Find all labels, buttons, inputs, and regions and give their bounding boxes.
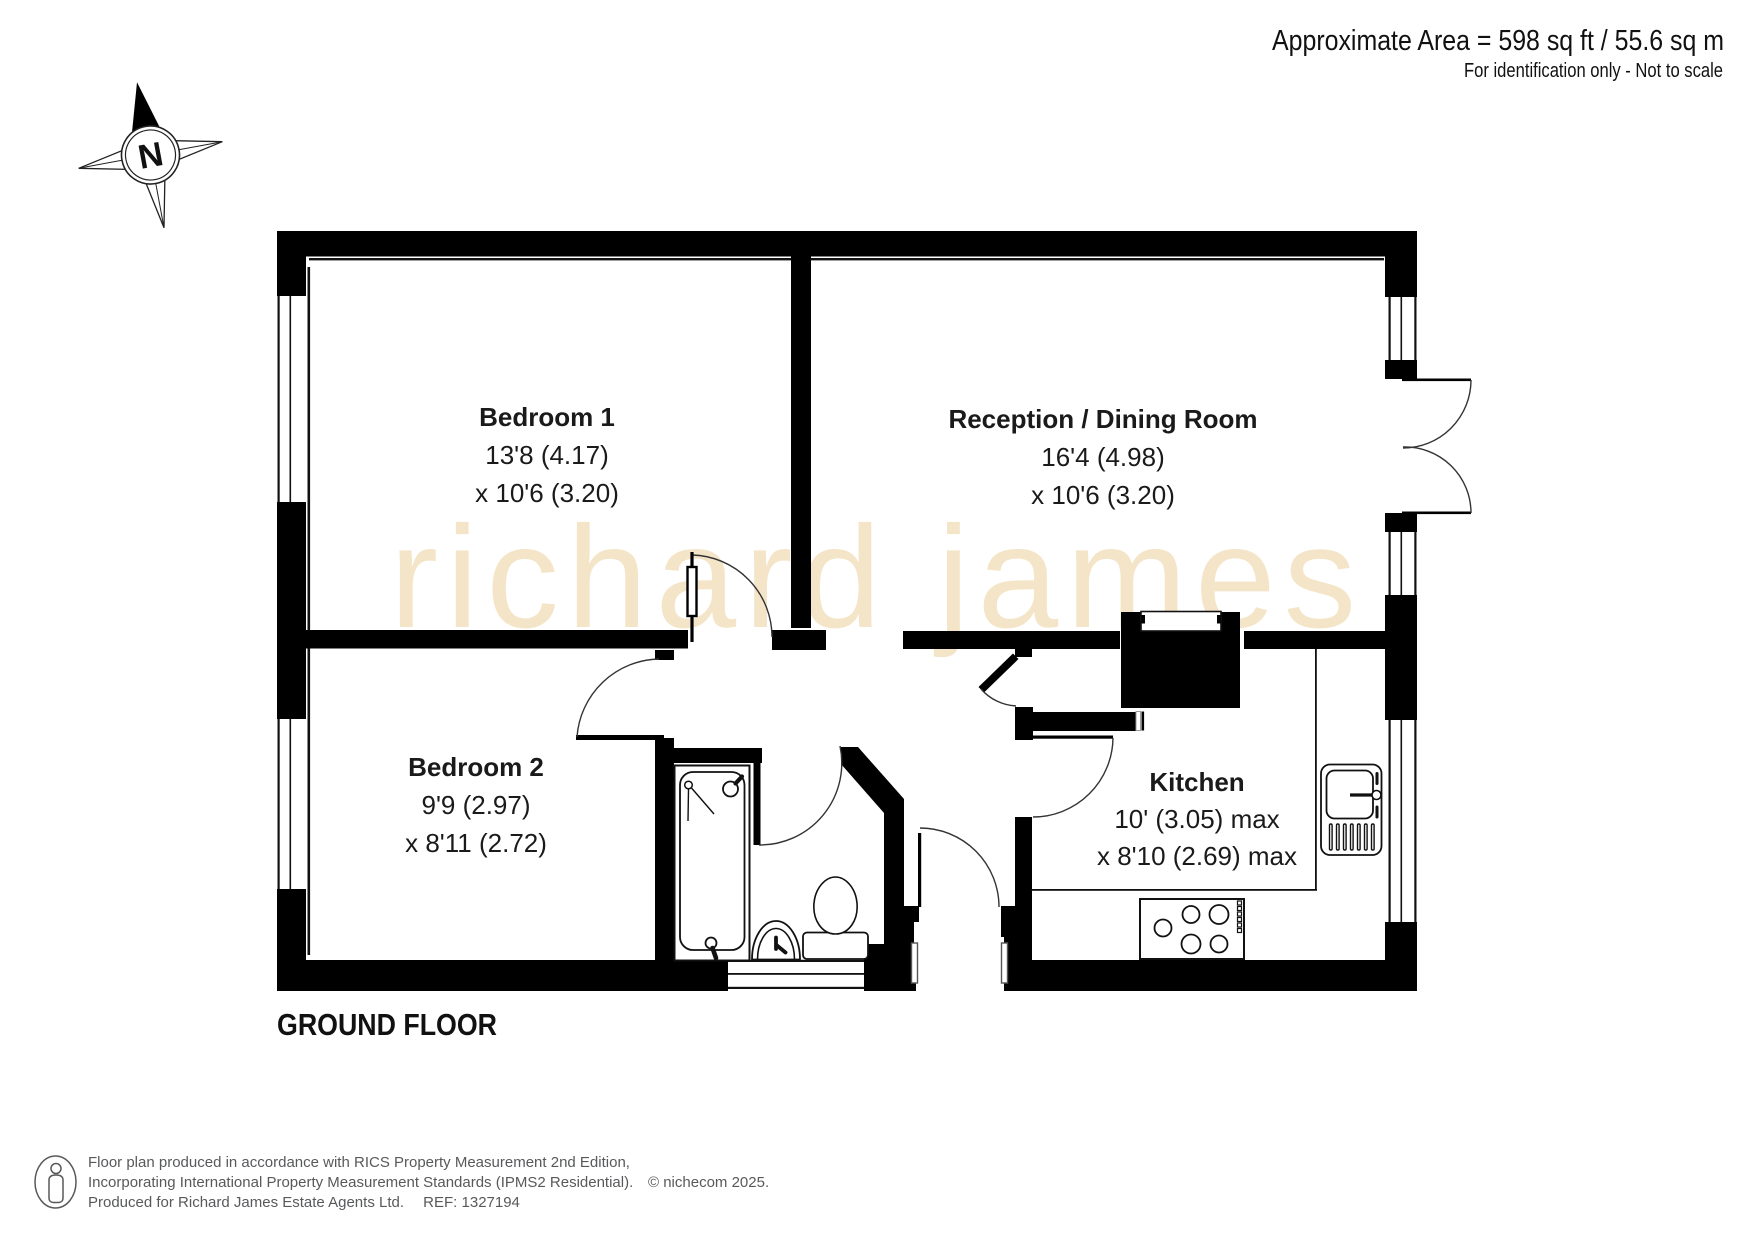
svg-text:x 10'6 (3.20): x 10'6 (3.20) [475, 478, 619, 508]
svg-text:10' (3.05) max: 10' (3.05) max [1114, 804, 1279, 834]
svg-text:16'4 (4.98): 16'4 (4.98) [1041, 442, 1165, 472]
svg-text:9'9 (2.97): 9'9 (2.97) [421, 790, 530, 820]
svg-text:13'8 (4.17): 13'8 (4.17) [485, 440, 609, 470]
svg-text:Bedroom 2: Bedroom 2 [408, 752, 544, 782]
svg-text:GROUND FLOOR: GROUND FLOOR [277, 1007, 497, 1042]
svg-text:Floor plan produced in accorda: Floor plan produced in accordance with R… [88, 1154, 630, 1171]
svg-text:Reception / Dining Room: Reception / Dining Room [948, 404, 1257, 434]
svg-text:x 10'6 (3.20): x 10'6 (3.20) [1031, 480, 1175, 510]
svg-text:Kitchen: Kitchen [1149, 767, 1244, 797]
svg-text:Approximate Area = 598 sq ft /: Approximate Area = 598 sq ft / 55.6 sq m [1272, 25, 1724, 57]
svg-text:Produced for Richard James Est: Produced for Richard James Estate Agents… [88, 1194, 520, 1211]
svg-text:Bedroom 1: Bedroom 1 [479, 402, 615, 432]
svg-text:x 8'11 (2.72): x 8'11 (2.72) [405, 828, 547, 858]
svg-text:For identification only - Not: For identification only - Not to scale [1464, 60, 1723, 82]
svg-text:x 8'10 (2.69) max: x 8'10 (2.69) max [1097, 841, 1297, 871]
svg-text:Incorporating International Pr: Incorporating International Property Mea… [88, 1174, 633, 1191]
svg-text:© nichecom 2025.: © nichecom 2025. [648, 1174, 769, 1191]
